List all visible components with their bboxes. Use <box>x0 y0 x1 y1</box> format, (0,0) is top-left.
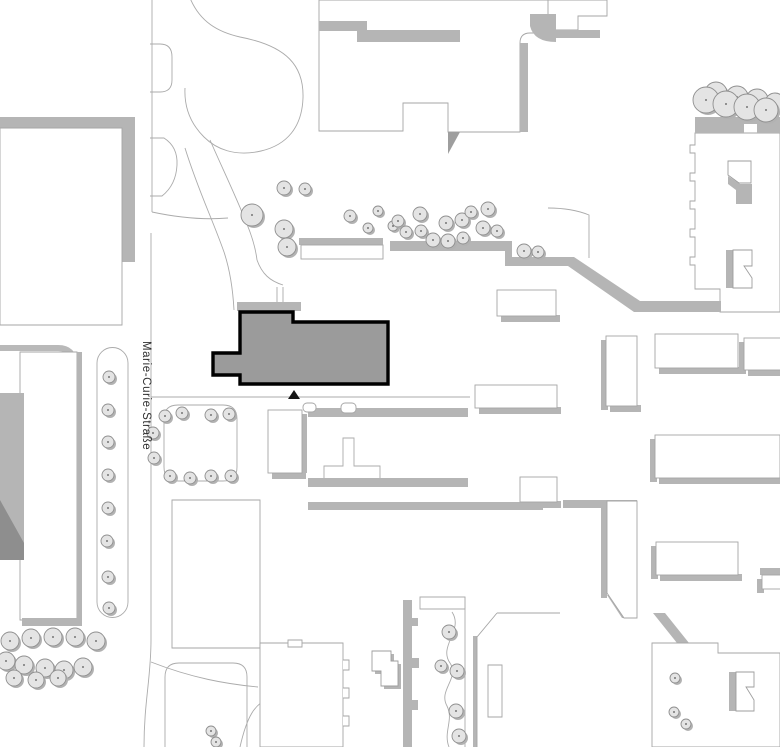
slab-g <box>655 435 780 478</box>
tree-trunk-dot <box>107 409 109 411</box>
se-rect <box>488 665 502 717</box>
tree-trunk-dot <box>5 660 7 662</box>
tree-trunk-dot <box>74 636 76 638</box>
tree-trunk-dot <box>9 640 11 642</box>
tree-trunk-dot <box>470 211 472 213</box>
slab-v-shadow <box>302 414 307 473</box>
street-edge-main <box>144 233 151 747</box>
se-diag-shadow <box>653 613 689 643</box>
tl-building-shadow-top <box>0 117 135 128</box>
highlighted-building <box>213 312 388 384</box>
tree-trunk-dot <box>95 640 97 642</box>
tree-trunk-dot <box>705 99 707 101</box>
tree-trunk-dot <box>106 540 108 542</box>
slab-f <box>520 477 557 502</box>
tree-trunk-dot <box>461 219 463 221</box>
tree-trunk-dot <box>44 667 46 669</box>
tree-trunk-dot <box>304 188 306 190</box>
street-label: Marie-Curie-Straße <box>140 341 152 450</box>
tab-a <box>303 403 316 412</box>
tree-trunk-dot <box>210 475 212 477</box>
tree-trunk-dot <box>397 220 399 222</box>
tree-trunk-dot <box>440 665 442 667</box>
t-path <box>324 438 380 480</box>
slab-v <box>268 410 302 473</box>
row-band-b <box>308 478 468 487</box>
tree-icon <box>0 652 15 670</box>
street-island-small <box>150 44 172 92</box>
tree-trunk-dot <box>82 666 84 668</box>
tree-trunk-dot <box>35 679 37 681</box>
slab-i <box>762 575 780 589</box>
tree-trunk-dot <box>456 670 458 672</box>
tree-trunk-dot <box>725 103 727 105</box>
tl-building <box>0 128 122 325</box>
tree-trunk-dot <box>52 636 54 638</box>
entrance-marker-icon <box>288 390 300 399</box>
tree-trunk-dot <box>349 215 351 217</box>
slab-d <box>744 338 780 370</box>
plaza-path <box>152 212 228 219</box>
tab-b <box>341 403 356 413</box>
tree-trunk-dot <box>63 669 65 671</box>
tree-trunk-dot <box>746 106 748 108</box>
site-plan-container: Marie-Curie-Straße <box>0 0 780 747</box>
tree-trunk-dot <box>13 677 15 679</box>
tree-trunk-dot <box>23 664 25 666</box>
tree-trunk-dot <box>251 214 253 216</box>
bl-shadow-right <box>77 352 82 620</box>
tree-trunk-dot <box>57 677 59 679</box>
tree-trunk-dot <box>181 412 183 414</box>
tree-trunk-dot <box>228 413 230 415</box>
row-band-a <box>308 408 468 417</box>
tree-trunk-dot <box>189 477 191 479</box>
tree-trunk-dot <box>107 474 109 476</box>
br-building <box>652 643 780 747</box>
tree-trunk-dot <box>458 735 460 737</box>
slab-upper <box>301 245 383 259</box>
slab-b <box>606 336 637 406</box>
tc-shadow-b <box>357 30 460 42</box>
tree-trunk-dot <box>164 415 166 417</box>
tree-trunk-dot <box>487 208 489 210</box>
wavy-wall <box>403 600 419 747</box>
tree-trunk-dot <box>367 227 369 229</box>
tree-trunk-dot <box>445 222 447 224</box>
bm-building <box>260 643 343 747</box>
ne-plaza-path <box>548 208 589 258</box>
tree-trunk-dot <box>230 475 232 477</box>
tree-trunk-dot <box>765 109 767 111</box>
plaza-lawn-outline <box>185 0 303 153</box>
tree-trunk-dot <box>210 414 212 416</box>
tree-trunk-dot <box>447 240 449 242</box>
tc-shadow-right <box>520 43 528 132</box>
tree-trunk-dot <box>482 227 484 229</box>
tree-trunk-dot <box>377 210 379 212</box>
tree-trunk-dot <box>537 251 539 253</box>
tree-trunk-dot <box>455 710 457 712</box>
tree-trunk-dot <box>448 631 450 633</box>
tree-trunk-dot <box>107 507 109 509</box>
tree-trunk-dot <box>108 607 110 609</box>
slab-c <box>655 334 738 368</box>
highlight-shadow <box>237 302 301 311</box>
tl-building-shadow-right <box>122 128 135 262</box>
bm-teeth <box>343 660 349 726</box>
sv-slab-shadow <box>601 503 607 598</box>
tree-trunk-dot <box>210 730 212 732</box>
tree-trunk-dot <box>286 246 288 248</box>
blc-building <box>172 500 260 648</box>
se-face-shadow <box>473 636 477 747</box>
footpath-b <box>210 140 257 260</box>
site-plan-map: Marie-Curie-Straße <box>0 0 780 747</box>
tc-shadow-a <box>319 21 367 31</box>
tree-trunk-dot <box>30 637 32 639</box>
slab-i-shadow <box>760 568 780 575</box>
rj-courtyard-b-shadow <box>726 250 733 288</box>
tree-trunk-dot <box>107 441 109 443</box>
tree-trunk-dot <box>283 187 285 189</box>
tree-trunk-dot <box>673 711 675 713</box>
tc-shadow-wedge <box>448 132 460 154</box>
tree-trunk-dot <box>215 741 217 743</box>
street-island-mid <box>150 138 177 196</box>
tr-piece <box>548 0 607 30</box>
tree-trunk-dot <box>674 677 676 679</box>
tree-trunk-dot <box>420 230 422 232</box>
bm-notch <box>288 640 302 647</box>
tree-trunk-dot <box>283 228 285 230</box>
slab-e <box>475 385 557 408</box>
br-court-shadow <box>729 672 736 711</box>
footpath-a <box>185 148 234 310</box>
wavy-cap <box>420 597 465 609</box>
slab-upper-shadow <box>299 238 383 245</box>
tr-hook-shadow <box>530 14 556 42</box>
tree-trunk-dot <box>108 376 110 378</box>
tree-trunk-dot <box>107 576 109 578</box>
slab-h <box>656 542 738 575</box>
tree-trunk-dot <box>462 237 464 239</box>
tree-trunk-dot <box>523 250 525 252</box>
tree-trunk-dot <box>496 230 498 232</box>
tree-trunk-dot <box>685 723 687 725</box>
bl-building <box>20 352 77 620</box>
bl-shadow-bottom <box>22 618 82 626</box>
tree-trunk-dot <box>432 239 434 241</box>
row-band-c <box>308 502 543 510</box>
slab-a <box>497 290 556 316</box>
tree-trunk-dot <box>169 475 171 477</box>
tree-trunk-dot <box>405 231 407 233</box>
tree-trunk-dot <box>419 213 421 215</box>
blc-court <box>165 663 247 747</box>
tree-trunk-dot <box>153 457 155 459</box>
flag <box>372 651 398 686</box>
